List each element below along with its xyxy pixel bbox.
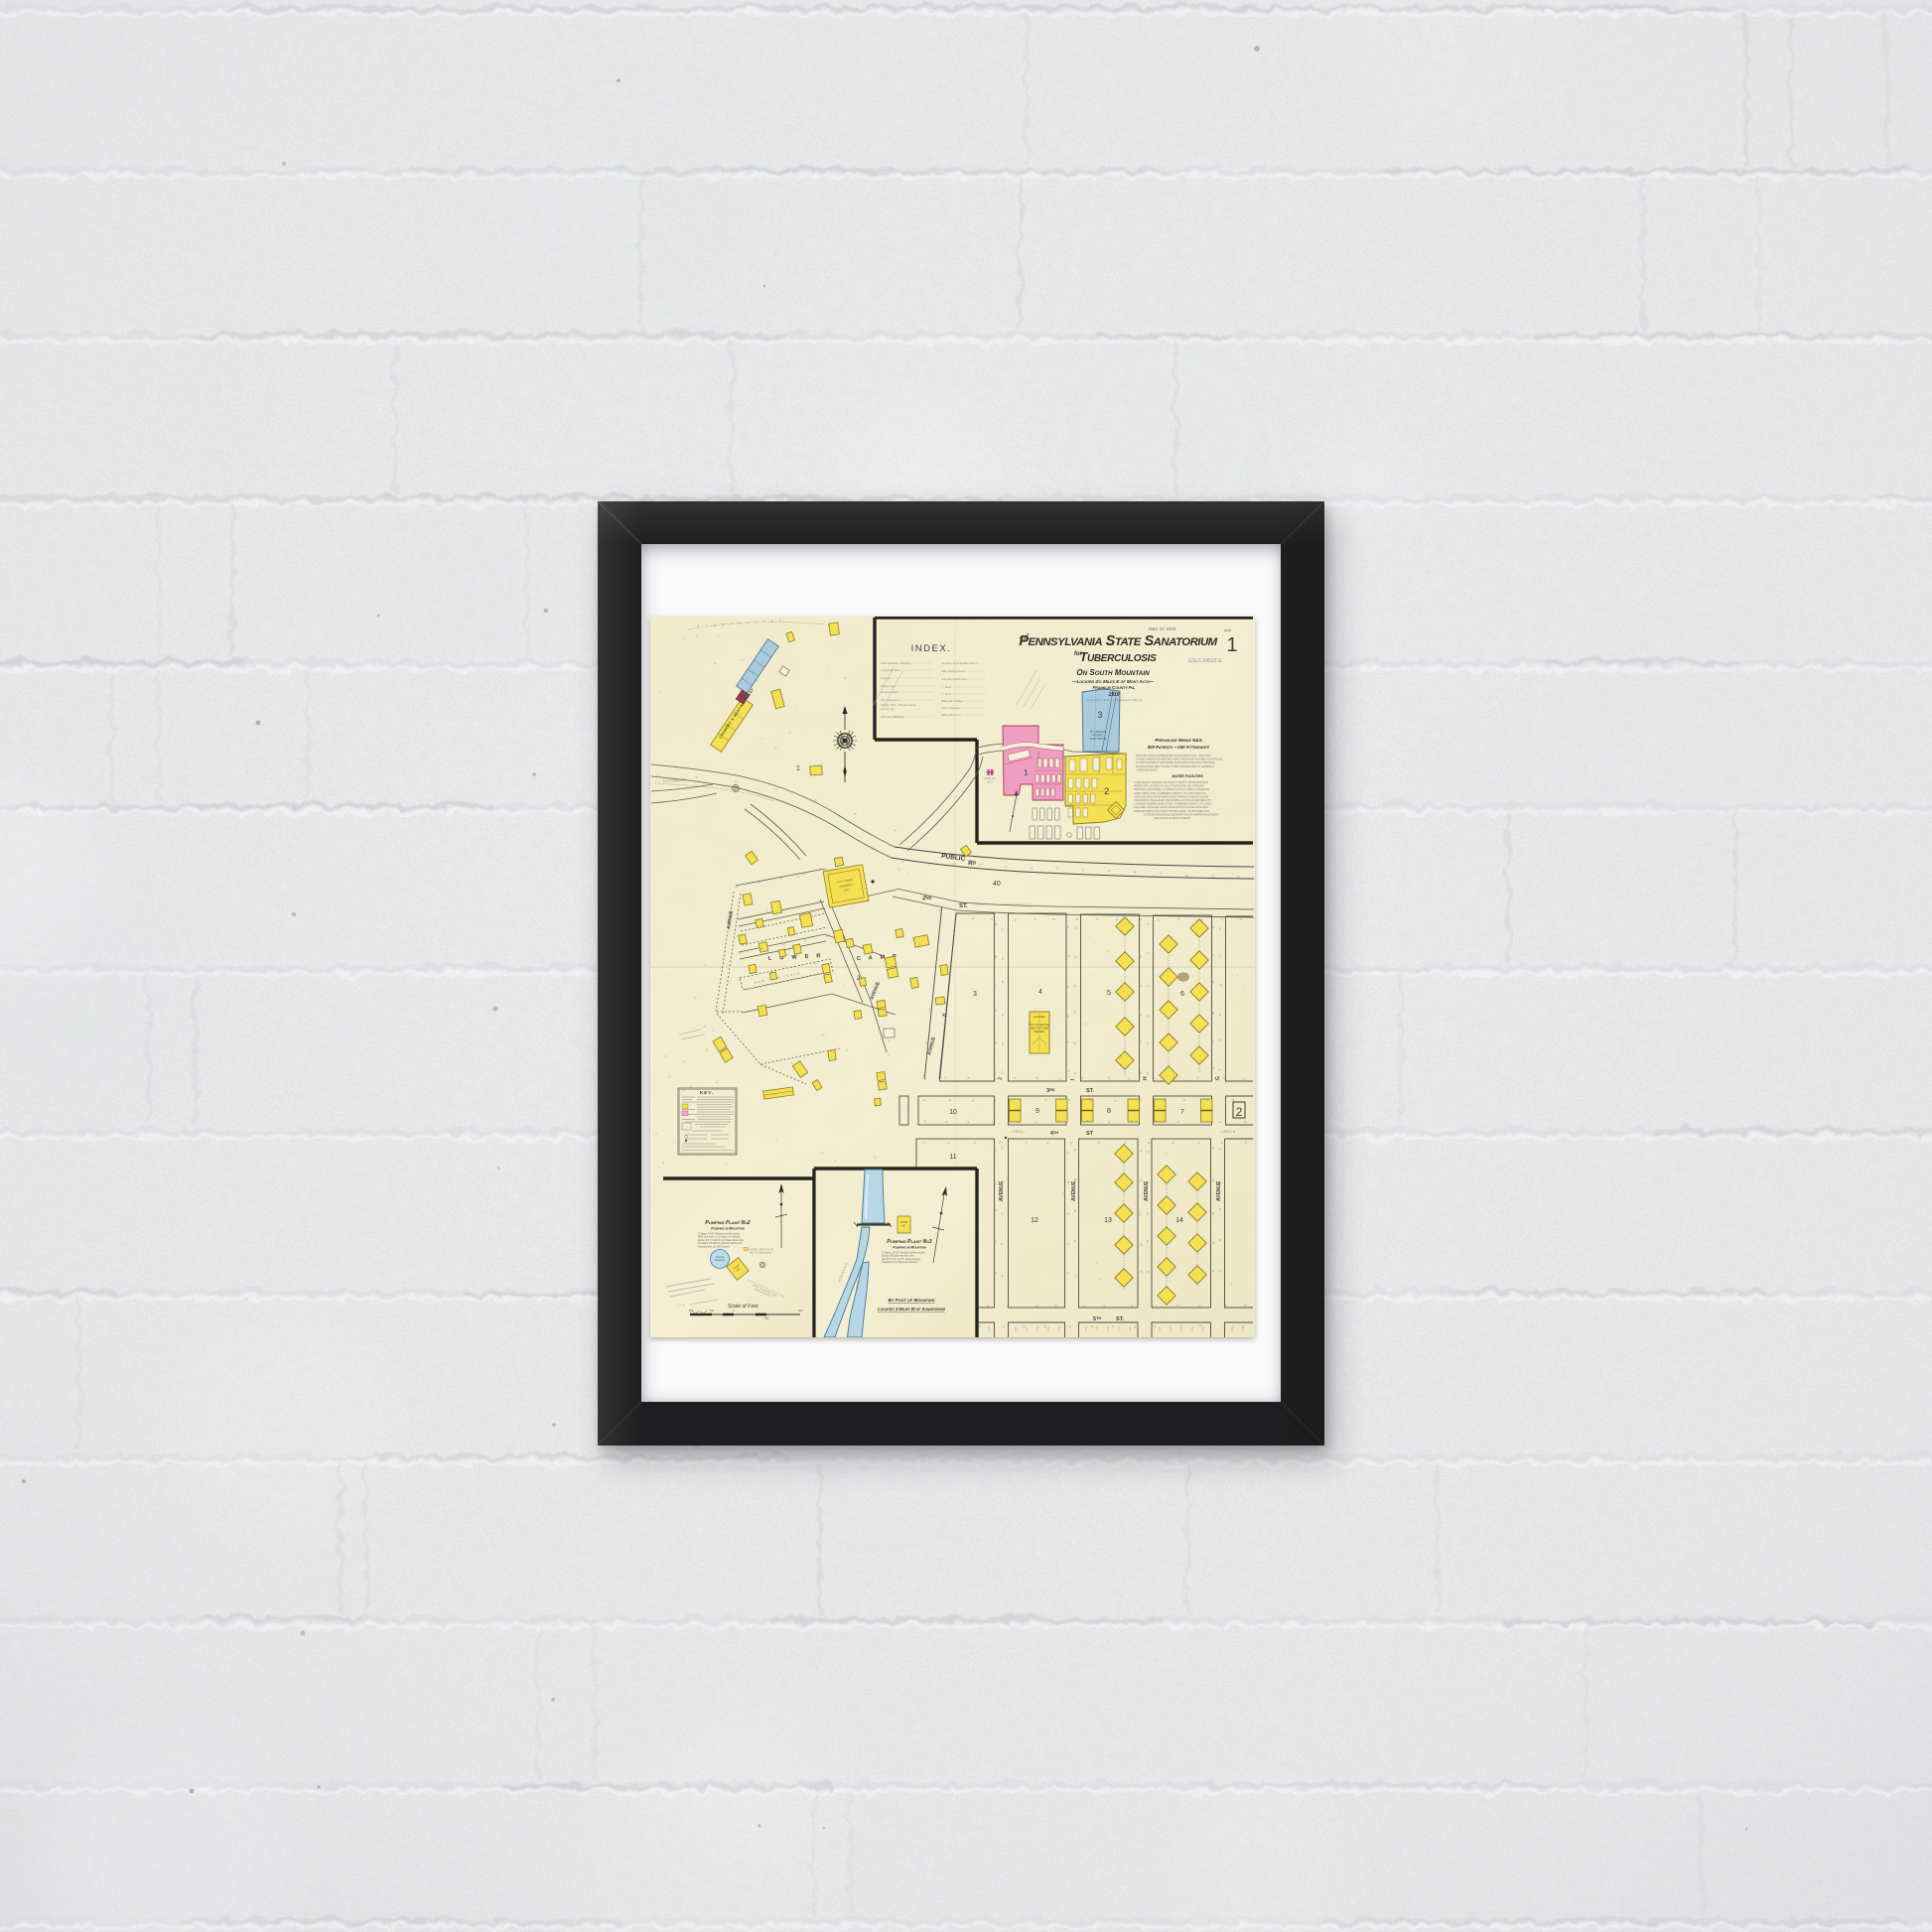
svg-text:J: J — [998, 1077, 1004, 1080]
svg-text:HOSE HO.: HOSE HO. — [984, 776, 997, 780]
svg-text:1: 1 — [1024, 768, 1029, 777]
svg-text:2: 2 — [1104, 786, 1109, 796]
svg-text:26 W: 26 W — [1224, 628, 1231, 632]
svg-text:..CROT....: ..CROT.... — [1011, 1130, 1027, 1134]
svg-text:8: 8 — [1107, 1108, 1111, 1115]
svg-text:Reservoir: Reservoir — [715, 1259, 725, 1262]
svg-text:PENNSYLVANIA STATE SANATORIUM: PENNSYLVANIA STATE SANATORIUM — [1019, 633, 1217, 649]
svg-text:White Pine Inn: White Pine Inn — [941, 713, 961, 717]
svg-text:5: 5 — [1107, 990, 1111, 997]
svg-text:1: 1 — [1226, 634, 1237, 656]
svg-text:PREVAILING WINDS N&S: PREVAILING WINDS N&S — [1155, 738, 1203, 743]
svg-text:40: 40 — [993, 881, 1001, 888]
svg-text:10: 10 — [949, 1109, 957, 1116]
svg-text:Assembly Hall: Assembly Hall — [881, 668, 899, 672]
svg-text:Copyrighted 1910 by the Sanbor: Copyrighted 1910 by the Sanborn Map Co. — [1086, 698, 1143, 702]
svg-text:CHAPEL: CHAPEL — [1034, 1015, 1045, 1019]
svg-text:..CROT..K...: ..CROT..K... — [1219, 1130, 1238, 1134]
svg-text:LINES WHICH HAS A COMBINED CA: LINES WHICH HAS A COMBINED CAPACITY OF A… — [1134, 792, 1206, 795]
svg-text:STREAMS HENCE ON WHOLE WINTER: STREAMS HENCE ON WHOLE WINTER SUPPLY IS … — [1134, 810, 1209, 813]
svg-text:150: 150 — [710, 1309, 715, 1312]
svg-text:PRIVATE: PRIVATE — [1093, 733, 1104, 737]
svg-text:DEC 27 1910: DEC 27 1910 — [1149, 626, 1176, 631]
svg-text:No.2: No.2 — [987, 779, 993, 783]
svg-text:Railroad Cottage: Railroad Cottage — [941, 699, 964, 703]
svg-text:torium, &c.: torium, &c. — [881, 707, 896, 711]
svg-text:PUMPING IN MOUNTAIN: PUMPING IN MOUNTAIN — [893, 1246, 927, 1250]
svg-text:ST: ST — [1086, 1131, 1094, 1137]
svg-text:STAGES HARDWOOD DESTRUCTIBLE S: STAGES HARDWOOD DESTRUCTIBLE STANCHIONS … — [1136, 759, 1223, 761]
svg-text:Infirmary Building: Infirmary Building — [881, 715, 904, 719]
svg-text:Unimproved 12,000 Gallons: Unimproved 12,000 Gallons — [698, 1244, 731, 1248]
svg-text:BY FOOT OF MOUNTAIN: BY FOOT OF MOUNTAIN — [889, 1298, 935, 1303]
svg-text:AVENUE: AVENUE — [1071, 1180, 1077, 1201]
svg-text:Main Dining Room: Main Dining Room — [941, 669, 966, 673]
svg-text:LOOP AND SPAN FROM IMPROVABLE: LOOP AND SPAN FROM IMPROVABLE SPRINGS PU… — [1134, 795, 1209, 798]
svg-text:See Correspondence: See Correspondence — [750, 1252, 772, 1255]
svg-text:CITIES DIRECT PUMPING OR GRAVI: CITIES DIRECT PUMPING OR GRAVITY SUPPLY … — [1134, 781, 1208, 784]
svg-text:ST.: ST. — [1116, 1316, 1124, 1322]
svg-text:9: 9 — [1035, 1108, 1039, 1115]
svg-text:2.7.5: 2.7.5 — [676, 1304, 685, 1308]
svg-text:ST.: ST. — [959, 903, 968, 909]
svg-text:PUMPING IN MOUNTAIN: PUMPING IN MOUNTAIN — [711, 1227, 746, 1231]
svg-text:SHOWN STAIRWAYS AND WATER FLA: SHOWN STAIRWAYS AND WATER FLAGS BUILDING… — [1136, 761, 1215, 764]
svg-text:3: 3 — [1097, 710, 1102, 720]
svg-text:SANATORIUM: SANATORIUM — [1089, 737, 1106, 741]
svg-text:7: 7 — [1180, 1109, 1184, 1116]
svg-text:FRANKLIN COUNTY PA.: FRANKLIN COUNTY PA. — [1092, 685, 1135, 690]
svg-text:" " No.2: " " No.2 — [941, 685, 951, 689]
svg-text:H: H — [1143, 1076, 1149, 1080]
svg-text:2 CHARGE PUMPER WHICH GIVE 2 C: 2 CHARGE PUMPER WHICH GIVE 2 COMBINED CA… — [1133, 803, 1211, 806]
svg-text:Deposit Plant: Deposit Plant — [881, 690, 898, 694]
svg-text:SEE NOTES ON DETAIL SHEETS: SEE NOTES ON DETAIL SHEETS — [1154, 817, 1190, 820]
svg-text:14: 14 — [1175, 1217, 1183, 1224]
svg-text:600: 600 — [798, 1309, 803, 1312]
svg-text:LOCATED 3 MILES W OF SANATORIU: LOCATED 3 MILES W OF SANATORIUM — [878, 1307, 945, 1311]
svg-text:Laundry and Heating Plant: Laundry and Heating Plant — [941, 661, 977, 665]
svg-text:Supplied from Mountain Strea: Supplied from Mountain Stream — [882, 1260, 918, 1264]
svg-text:" " No.3: " " No.3 — [941, 692, 951, 696]
svg-text:DEATHWAY SOUTHWELL 2 PUMPS PL: DEATHWAY SOUTHWELL 2 PUMPS PLANTS AT SIT… — [1134, 788, 1209, 791]
svg-text:13: 13 — [1104, 1217, 1112, 1224]
svg-text:HO.: HO. — [901, 1225, 906, 1228]
svg-text:11: 11 — [949, 1154, 956, 1161]
svg-text:PRESENT: PRESENT — [1034, 1031, 1045, 1034]
svg-text:G: G — [1215, 1076, 1221, 1080]
svg-text:INDEX.: INDEX. — [911, 643, 952, 654]
svg-text:300: 300 — [764, 1316, 769, 1320]
svg-text:LARGE BUILDINGS: LARGE BUILDINGS — [1136, 768, 1158, 771]
svg-text:GALS PER HOUR AND GROW FR: GALS PER HOUR AND GROW FROM STATICS FAIL… — [1134, 806, 1208, 809]
svg-text:WATER FACILITIES: WATER FACILITIES — [1172, 773, 1203, 778]
svg-text:KEY.: KEY. — [700, 1090, 714, 1095]
svg-text:EXTINGUISHED HEAT TO NOW YORK: EXTINGUISHED HEAT TO NOW YORK CHLORINATI… — [1136, 765, 1214, 768]
svg-text:3: 3 — [973, 991, 977, 998]
svg-text:MT. VERNON: MT. VERNON — [1090, 730, 1106, 734]
svg-text:1: 1 — [796, 765, 800, 772]
svg-text:SYSTEM FOR DETAILED DESCRIPT: SYSTEM FOR DETAILED DESCRIPTION OF PUMPI… — [1144, 813, 1219, 816]
svg-text:6: 6 — [1180, 991, 1184, 998]
svg-text:GSLF 24523 G: GSLF 24523 G — [1188, 658, 1222, 664]
svg-text:12: 12 — [1031, 1217, 1038, 1224]
svg-text:Fire Apparatus: Fire Apparatus — [881, 698, 900, 702]
svg-text:ST.: ST. — [1086, 1088, 1094, 1094]
svg-text:300: 300 — [689, 1309, 694, 1312]
svg-text:CONTAINING ONE DUPLEX AND DOUB: CONTAINING ONE DUPLEX AND DOUBLE-ACTING … — [1134, 799, 1211, 802]
svg-text:2: 2 — [1236, 1105, 1243, 1119]
svg-text:4: 4 — [1038, 989, 1042, 996]
svg-text:RESERVOIR LOCATED ON HILL AT E: RESERVOIR LOCATED ON HILL AT ELEVATION 1… — [1134, 785, 1204, 788]
svg-text:Administration Building: Administration Building — [881, 661, 911, 665]
svg-text:PUMP: PUMP — [900, 1221, 908, 1224]
svg-text:MOST BUILDINGS NONDESCRIPT ELE: MOST BUILDINGS NONDESCRIPT ELEVATIONS CO… — [1136, 755, 1211, 758]
svg-text:ON SOUTH MOUNTAIN: ON SOUTH MOUNTAIN — [1076, 668, 1150, 677]
svg-text:Chapel: Chapel — [881, 676, 891, 680]
svg-text:Twin Cottages: Twin Cottages — [941, 706, 961, 710]
svg-text:Pumping Plant No.1: Pumping Plant No.1 — [941, 677, 968, 681]
svg-text:TUBERCULOSIS: TUBERCULOSIS — [1080, 650, 1158, 664]
svg-text:800 PATIENTS —150 ATTENDANTS: 800 PATIENTS —150 ATTENDANTS — [1148, 745, 1210, 750]
